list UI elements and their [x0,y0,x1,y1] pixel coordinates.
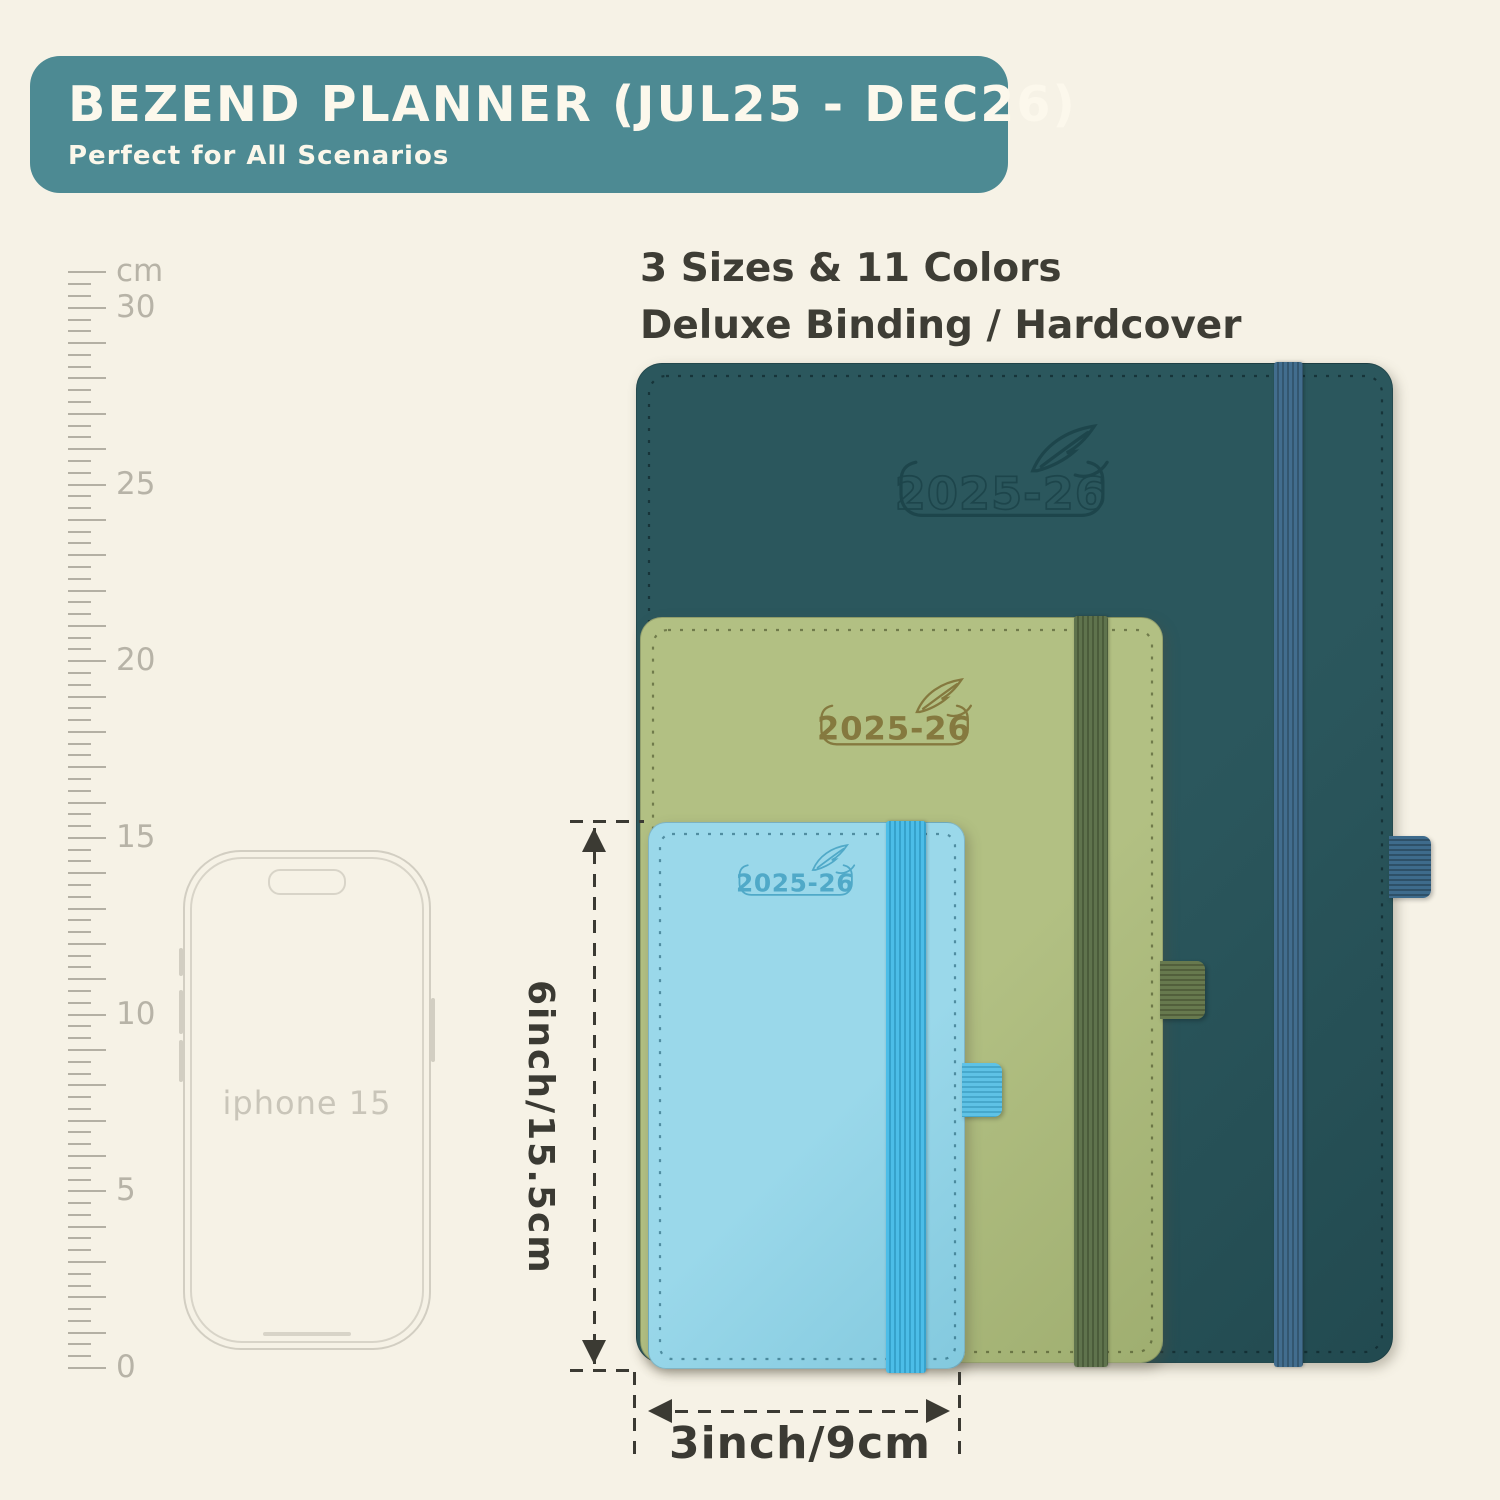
width-dimension-line [652,1410,948,1413]
ruler-tick [68,1014,106,1016]
ruler-label: 25 [116,468,155,500]
ruler-tick [68,1320,91,1322]
ruler-tick [68,295,91,297]
ruler-tick [68,660,106,662]
ruler-tick [68,307,106,309]
ruler-tick [68,1167,91,1169]
ruler-tick [68,330,91,332]
ruler-tick [68,377,106,379]
ruler-tick [68,1073,91,1075]
ruler-label: 0 [116,1351,136,1383]
ruler-tick [68,1084,106,1086]
product-infographic: BEZEND PLANNER (JUL25 - DEC26) Perfect f… [0,0,1500,1500]
ruler-tick [68,1120,106,1122]
year-label: 2025-26 [736,868,854,897]
dimension-extension-top [570,820,644,823]
ruler-tick [68,271,106,273]
ruler-tick [68,425,91,427]
ruler-tick [68,837,106,839]
bottom-port [263,1332,351,1336]
iphone-label: iphone 15 [185,1084,429,1122]
ruler-tick [68,342,106,344]
ruler-tick [68,955,91,957]
ruler-tick [68,578,91,580]
ruler-tick [68,625,106,627]
ruler-tick [68,613,91,615]
ruler-tick [68,766,106,768]
ruler-tick [68,1343,91,1345]
ruler-label: 5 [116,1174,136,1206]
ruler-tick [68,519,106,521]
ruler-tick [68,1355,91,1357]
power-button [431,998,435,1062]
ruler-tick [68,1096,91,1098]
dynamic-island [268,869,346,895]
ruler-tick [68,554,106,556]
dimension-extension-left [633,1372,636,1464]
ruler-tick [68,1285,91,1287]
ruler-tick [68,896,91,898]
ruler-tick [68,1249,91,1251]
feature-line-sizes: 3 Sizes & 11 Colors [640,240,1242,297]
ruler-tick [68,1143,91,1145]
ruler-tick [68,366,91,368]
ruler-tick [68,1179,91,1181]
ruler-tick [68,1155,106,1157]
year-label: 2025-26 [895,468,1107,520]
ruler-unit-label: cm [116,255,163,287]
ruler-tick [68,978,106,980]
feature-headline: 3 Sizes & 11 Colors Deluxe Binding / Har… [640,240,1242,354]
ruler-label: 30 [116,291,155,323]
dimension-extension-bottom [570,1369,638,1372]
ruler-tick [68,389,91,391]
ruler-label: 10 [116,998,155,1030]
ruler-tick [68,966,91,968]
elastic-band [1074,616,1108,1367]
ruler-tick [68,590,106,592]
ruler-tick [68,319,91,321]
planner-cover-logo: 2025-26 [884,424,1139,552]
ruler-tick [68,448,106,450]
ruler-tick [68,1367,106,1369]
pen-loop [962,1063,1002,1117]
ruler-tick [68,1296,106,1298]
ruler-tick [68,931,91,933]
ruler-tick [68,1308,91,1310]
ruler-tick [68,1190,106,1192]
ruler-tick [68,472,91,474]
ruler-tick [68,1214,91,1216]
ruler-tick [68,719,91,721]
height-dimension-label: 6inch/15.5cm [520,980,561,1275]
ruler-tick [68,1002,91,1004]
ruler-tick [68,507,91,509]
ruler-tick [68,743,91,745]
ruler-tick [68,436,91,438]
ruler-label: 20 [116,644,155,676]
ruler-tick [68,1061,91,1063]
product-title: BEZEND PLANNER (JUL25 - DEC26) [68,76,1008,133]
title-banner: BEZEND PLANNER (JUL25 - DEC26) Perfect f… [30,56,1008,193]
ruler-tick [68,790,91,792]
pen-loop [1389,836,1431,898]
height-dimension-line [593,828,596,1364]
ruler-tick [68,754,91,756]
mute-switch [179,948,183,976]
ruler-tick [68,684,91,686]
elastic-band [886,821,926,1373]
arrow-down-icon [582,1340,606,1364]
ruler-tick [68,731,106,733]
year-label: 2025-26 [817,710,971,748]
elastic-band [1274,362,1303,1367]
planner-cover-logo: 2025-26 [809,678,994,771]
ruler-tick [68,566,91,568]
ruler-tick [68,1202,91,1204]
ruler-tick [68,872,106,874]
planner-cover-logo: 2025-26 [730,844,872,915]
product-subtitle: Perfect for All Scenarios [68,141,1008,171]
ruler-tick [68,943,106,945]
width-dimension-label: 3inch/9cm [652,1418,948,1469]
ruler-tick [68,696,106,698]
ruler-tick [68,601,91,603]
ruler-tick [68,1131,91,1133]
ruler-tick [68,401,91,403]
ruler-tick [68,884,91,886]
pen-loop [1160,961,1205,1019]
ruler-label: 15 [116,821,155,853]
dimension-extension-right [958,1372,961,1464]
ruler-tick [68,413,106,415]
volume-down-button [179,1040,183,1082]
ruler-tick [68,849,91,851]
ruler-tick [68,802,106,804]
ruler-tick [68,1226,106,1228]
ruler-tick [68,919,91,921]
ruler-tick [68,707,91,709]
ruler-tick [68,484,106,486]
ruler-tick [68,672,91,674]
ruler-tick [68,460,91,462]
ruler-tick [68,542,91,544]
ruler-tick [68,813,91,815]
ruler-tick [68,531,91,533]
ruler-tick [68,990,91,992]
ruler-tick [68,283,91,285]
ruler-tick [68,1273,91,1275]
ruler-tick [68,825,91,827]
ruler-tick [68,860,91,862]
arrow-up-icon [582,828,606,852]
ruler-tick [68,354,91,356]
iphone-outline: iphone 15 [183,850,431,1350]
planner-small-blue: 2025-26 [648,822,965,1369]
ruler-tick [68,1025,91,1027]
ruler-tick [68,908,106,910]
ruler-tick [68,1049,106,1051]
ruler-tick [68,1261,106,1263]
ruler-tick [68,1237,91,1239]
ruler-tick [68,778,91,780]
ruler-tick [68,637,91,639]
feature-line-binding: Deluxe Binding / Hardcover [640,297,1242,354]
ruler-tick [68,1037,91,1039]
volume-up-button [179,990,183,1034]
ruler-tick [68,1332,106,1334]
ruler-tick [68,1108,91,1110]
ruler-tick [68,648,91,650]
ruler-tick [68,495,91,497]
